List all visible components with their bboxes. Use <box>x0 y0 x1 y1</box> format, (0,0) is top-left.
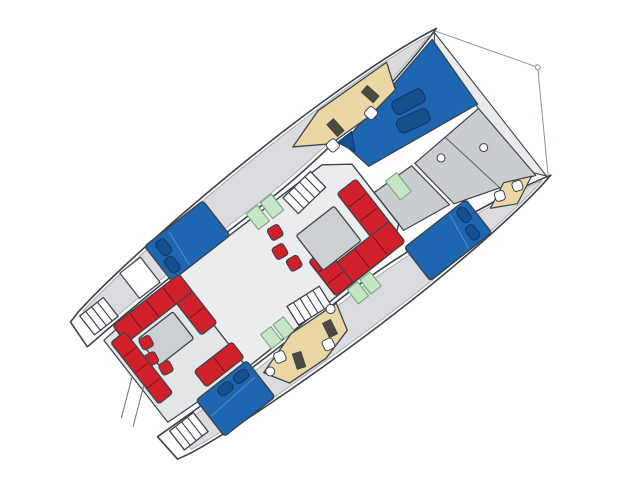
floorplan-stage <box>0 0 640 478</box>
boat-group <box>44 0 605 478</box>
bridle-ring <box>534 64 541 71</box>
catamaran-floorplan-svg <box>0 0 640 478</box>
